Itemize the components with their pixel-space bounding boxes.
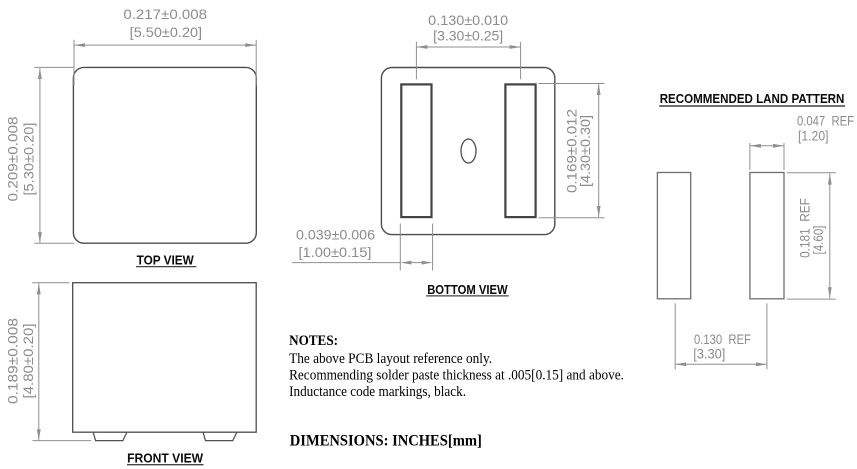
svg-text:0.209±0.008: 0.209±0.008 <box>5 116 21 201</box>
svg-text:[5.50±0.20]: [5.50±0.20] <box>130 24 202 40</box>
svg-text:0.130±0.010: 0.130±0.010 <box>428 12 508 28</box>
svg-text:[3.30]: [3.30] <box>693 346 725 362</box>
svg-text:[4.80±0.20]: [4.80±0.20] <box>20 324 36 399</box>
svg-text:0.130 REF: 0.130 REF <box>694 331 751 347</box>
svg-text:NOTES:: NOTES: <box>289 332 338 349</box>
svg-text:FRONT VIEW: FRONT VIEW <box>127 451 204 466</box>
svg-text:[1.20]: [1.20] <box>798 127 829 143</box>
svg-text:[1.00±0.15]: [1.00±0.15] <box>299 244 372 260</box>
svg-text:The above PCB layout reference: The above PCB layout reference only. <box>289 351 492 367</box>
svg-text:RECOMMENDED LAND PATTERN: RECOMMENDED LAND PATTERN <box>660 91 845 106</box>
svg-text:[5.30±0.20]: [5.30±0.20] <box>20 123 36 196</box>
svg-text:DIMENSIONS: INCHES[mm]: DIMENSIONS: INCHES[mm] <box>290 431 482 449</box>
svg-text:TOP VIEW: TOP VIEW <box>137 253 195 268</box>
svg-text:[4.60]: [4.60] <box>810 226 826 255</box>
svg-text:Inductance code markings, blac: Inductance code markings, black. <box>289 384 466 400</box>
svg-text:0.047 REF: 0.047 REF <box>797 113 854 129</box>
svg-text:0.189±0.008: 0.189±0.008 <box>5 318 21 404</box>
svg-text:[3.30±0.25]: [3.30±0.25] <box>433 27 503 43</box>
svg-text:[4.30±0.30]: [4.30±0.30] <box>577 115 593 187</box>
svg-text:0.217±0.008: 0.217±0.008 <box>123 6 207 22</box>
svg-text:Recommending solder paste thic: Recommending solder paste thickness at .… <box>289 367 624 383</box>
svg-text:BOTTOM VIEW: BOTTOM VIEW <box>427 282 508 297</box>
svg-text:0.039±0.006: 0.039±0.006 <box>296 227 375 243</box>
